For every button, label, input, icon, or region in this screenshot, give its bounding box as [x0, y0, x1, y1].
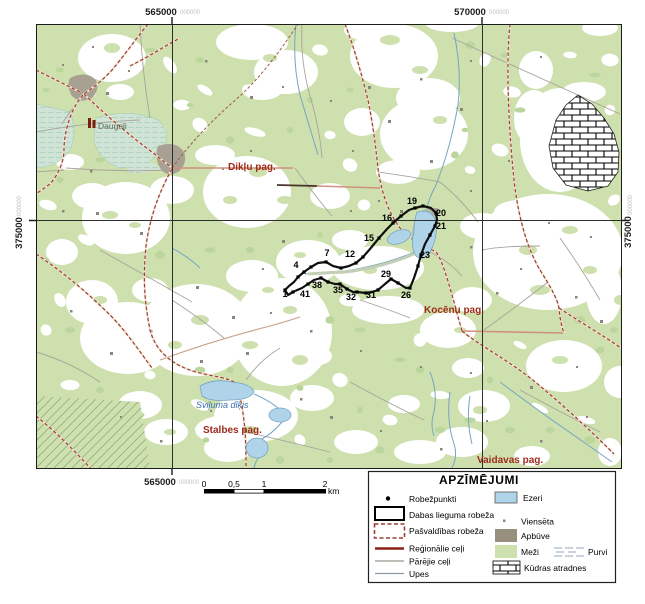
svg-text:Pārējie ceļi: Pārējie ceļi: [409, 557, 451, 567]
svg-text:000000: 000000: [180, 10, 201, 16]
svg-text:1: 1: [262, 479, 267, 489]
svg-text:12: 12: [345, 249, 355, 259]
svg-text:20: 20: [436, 208, 446, 218]
svg-text:570000: 570000: [454, 7, 486, 18]
svg-text:Vaidavas pag.: Vaidavas pag.: [477, 455, 543, 466]
svg-text:km: km: [328, 486, 339, 496]
svg-text:32: 32: [346, 292, 356, 302]
svg-text:29: 29: [381, 269, 391, 279]
svg-text:Kūdras atradnes: Kūdras atradnes: [524, 563, 586, 573]
svg-text:7: 7: [324, 248, 329, 258]
svg-text:Viensēta: Viensēta: [521, 517, 554, 527]
svg-text:Stalbes pag.: Stalbes pag.: [203, 425, 262, 436]
svg-text:375000: 375000: [623, 216, 634, 248]
svg-text:565000: 565000: [145, 7, 177, 18]
svg-text:4: 4: [293, 260, 298, 270]
svg-text:1: 1: [282, 289, 287, 299]
svg-text:000000: 000000: [17, 195, 23, 216]
svg-text:Reģionālie ceļi: Reģionālie ceļi: [409, 544, 464, 554]
svg-text:Apbūve: Apbūve: [521, 531, 550, 541]
svg-text:23: 23: [420, 250, 430, 260]
svg-text:Sviļuma dīķis: Sviļuma dīķis: [196, 400, 249, 410]
svg-text:000000: 000000: [179, 480, 200, 486]
svg-text:2: 2: [323, 479, 328, 489]
svg-text:41: 41: [300, 289, 310, 299]
svg-text:Purvi: Purvi: [588, 547, 607, 557]
svg-text:38: 38: [312, 280, 322, 290]
svg-text:Pašvaldības robeža: Pašvaldības robeža: [409, 526, 484, 536]
svg-text:Ezeri: Ezeri: [523, 493, 542, 503]
svg-text:375000: 375000: [14, 217, 25, 249]
svg-text:26: 26: [401, 290, 411, 300]
svg-text:Meži: Meži: [521, 547, 539, 557]
svg-text:21: 21: [436, 221, 446, 231]
svg-text:APZĪMĒJUMI: APZĪMĒJUMI: [439, 473, 519, 487]
svg-text:Robežpunkti: Robežpunkti: [409, 494, 456, 504]
svg-text:565000: 565000: [144, 477, 176, 488]
svg-text:Dabas lieguma robeža: Dabas lieguma robeža: [409, 510, 494, 520]
svg-text:000000: 000000: [489, 10, 510, 16]
svg-text:0: 0: [202, 479, 207, 489]
svg-text:15: 15: [364, 233, 374, 243]
svg-text:16: 16: [382, 213, 392, 223]
svg-text:000000: 000000: [628, 194, 634, 215]
svg-text:19: 19: [407, 196, 417, 206]
svg-text:Kocēnu pag.: Kocēnu pag.: [424, 305, 484, 316]
svg-text:0,5: 0,5: [228, 479, 240, 489]
svg-text:31: 31: [366, 290, 376, 300]
svg-text:Daugaļi: Daugaļi: [98, 121, 127, 131]
svg-text:35: 35: [333, 285, 343, 295]
svg-text:Upes: Upes: [409, 569, 429, 579]
svg-text:Dikļu pag.: Dikļu pag.: [228, 162, 276, 173]
